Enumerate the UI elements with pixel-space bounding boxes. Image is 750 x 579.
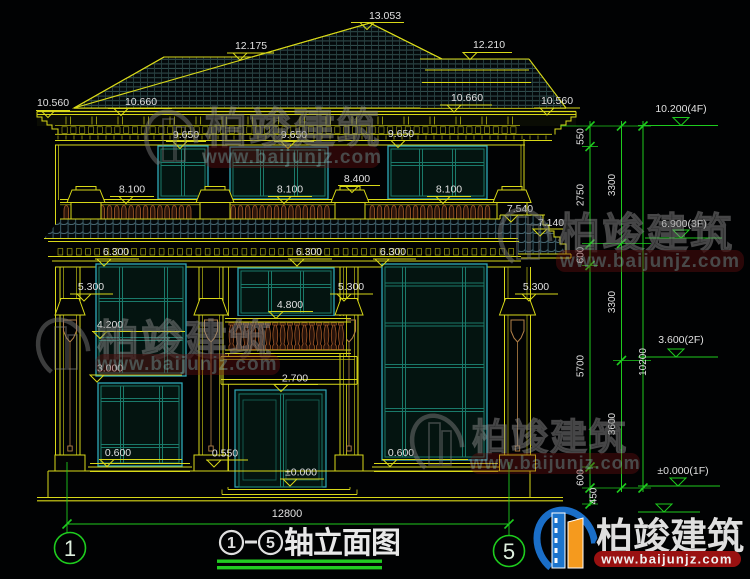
svg-text:6.300: 6.300 [103,246,129,258]
svg-text:12800: 12800 [272,508,303,520]
svg-text:550: 550 [576,128,587,145]
svg-text:6.300: 6.300 [296,246,322,258]
svg-text:5.300: 5.300 [523,281,549,293]
svg-text:5: 5 [503,539,515,564]
svg-text:10.660: 10.660 [125,96,157,108]
svg-text:2750: 2750 [576,183,587,206]
svg-text:0.550: 0.550 [212,448,238,460]
svg-text:8.100: 8.100 [436,184,462,196]
svg-text:4.800: 4.800 [277,299,303,311]
svg-text:www.baijunjz.com: www.baijunjz.com [468,453,640,473]
svg-text:www.baijunjz.com: www.baijunjz.com [559,251,740,272]
svg-text:9.650: 9.650 [388,128,414,140]
svg-text:2.700: 2.700 [282,373,308,385]
svg-text:450: 450 [589,487,600,504]
svg-text:柏竣建筑: 柏竣建筑 [472,416,628,458]
svg-text:±0.000(1F): ±0.000(1F) [657,465,708,477]
svg-text:12.175: 12.175 [235,40,267,52]
svg-text:10200: 10200 [638,348,649,376]
svg-text:www.baijunjz.com: www.baijunjz.com [600,552,732,567]
svg-text:10.200(4F): 10.200(4F) [655,103,706,115]
svg-text:1: 1 [227,535,236,552]
svg-text:5.300: 5.300 [338,281,364,293]
svg-text:12.210: 12.210 [473,39,505,51]
svg-text:10.660: 10.660 [451,92,483,104]
svg-text:±0.000: ±0.000 [285,467,317,479]
svg-text:0.600: 0.600 [105,447,131,459]
svg-text:13.053: 13.053 [369,10,401,22]
svg-text:8.400: 8.400 [344,173,370,185]
svg-text:www.baijunjz.com: www.baijunjz.com [97,354,278,375]
svg-text:10.560: 10.560 [37,97,69,109]
svg-text:8.100: 8.100 [119,184,145,196]
svg-text:柏竣建筑: 柏竣建筑 [558,210,734,257]
svg-text:10.560: 10.560 [541,95,573,107]
svg-text:0.600: 0.600 [388,447,414,459]
svg-text:5.300: 5.300 [78,281,104,293]
svg-text:6.300: 6.300 [380,246,406,258]
svg-text:3.600(2F): 3.600(2F) [658,334,704,346]
svg-text:柏竣建筑: 柏竣建筑 [205,105,381,152]
svg-text:5700: 5700 [576,354,587,377]
svg-text:www.baijunjz.com: www.baijunjz.com [201,147,382,168]
svg-text:3300: 3300 [607,290,618,313]
svg-text:1: 1 [64,536,76,561]
svg-text:3300: 3300 [607,173,618,196]
svg-text:8.100: 8.100 [277,184,303,196]
svg-text:轴立面图: 轴立面图 [284,526,400,560]
svg-text:5: 5 [266,535,275,552]
